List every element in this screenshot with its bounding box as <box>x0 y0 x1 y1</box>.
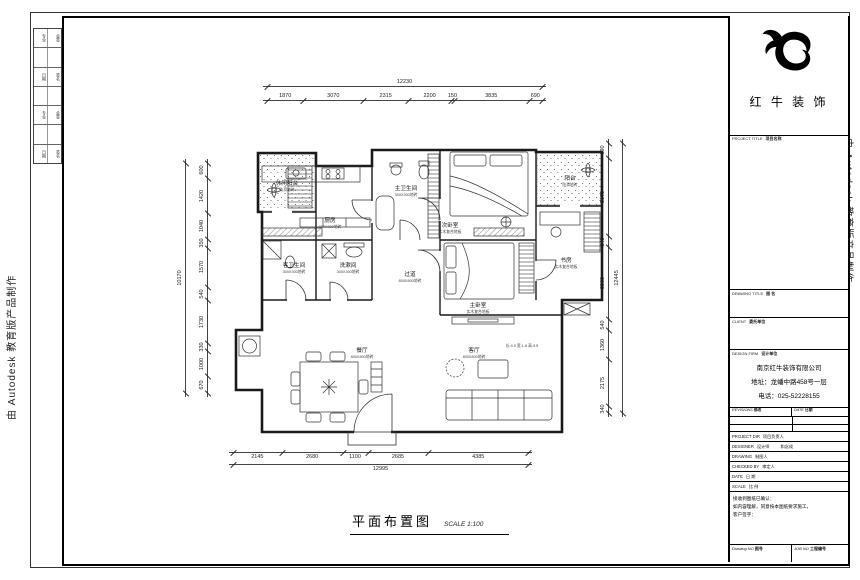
note-section: 接收到图纸已确认： 如内容理解，同意按本图纸要求施工， 客户签字： <box>730 492 848 545</box>
svg-text:防滑地砖: 防滑地砖 <box>279 187 294 192</box>
row-designer: DESIGNER设计师和念成 <box>730 442 848 452</box>
row-checked-by: CHECKED BY审定人 <box>730 462 848 472</box>
room-label-living: 客厅 <box>468 346 480 354</box>
firm-phone: 电话：025-52228155 <box>730 390 848 400</box>
client-section: CLIENT委托单位 <box>730 318 848 350</box>
revision-row <box>730 417 848 425</box>
firm-address: 地址：龙蟠中路458号一层 <box>730 376 848 386</box>
room-label-guest-bath: 客卫生间 <box>283 261 306 269</box>
row-project-dir: PROJECT DIR项目负责人 <box>730 432 848 442</box>
room-label-hallway: 过道 <box>404 270 416 278</box>
room-label-second-bedroom: 次卧室 <box>442 221 459 229</box>
company-name: 红 牛 装 饰 <box>730 93 848 110</box>
svg-text:800X800地砖: 800X800地砖 <box>319 224 342 229</box>
room-label-dining: 餐厅 <box>356 346 368 354</box>
svg-text:300X300地砖: 300X300地砖 <box>395 192 418 197</box>
title-block: 红 牛 装 饰 PROJECT TITLE项目名称 DRAWING TITLE图… <box>728 16 848 562</box>
revisions-table: REVISIONS 修改 DATE 日期 <box>730 408 848 432</box>
drawing-title-section: DRAWING TITLE图 名 <box>730 290 848 318</box>
svg-text:300X300地砖: 300X300地砖 <box>283 269 306 274</box>
bull-logo-icon <box>760 26 818 84</box>
drawing-caption-scale: SCALE 1:100 <box>444 521 483 528</box>
svg-text:防滑地砖: 防滑地砖 <box>562 182 577 187</box>
svg-text:300X300地砖: 300X300地砖 <box>337 269 360 274</box>
design-firm-section: DESIGN FIRM设计单位 南京红牛装饰有限公司 地址：龙蟠中路458号一层… <box>730 350 848 408</box>
company-logo: 红 牛 装 饰 <box>730 16 848 136</box>
drawing-no-cell: Drawing NO 图号 <box>730 545 792 562</box>
svg-text:800X800地砖: 800X800地砖 <box>399 278 422 283</box>
drawing-caption-title: 平面布置图 <box>352 514 432 529</box>
room-label-master-bath: 主卫生间 <box>395 184 418 192</box>
drawing-caption: 平面布置图SCALE 1:100 <box>350 511 509 535</box>
room-label-leisure-balcony: 休闲阳台 <box>276 179 299 187</box>
room-label-washroom: 洗漱间 <box>340 261 357 269</box>
revision-row <box>730 425 848 432</box>
firm-name: 南京红牛装饰有限公司 <box>730 362 848 372</box>
info-rows: PROJECT DIR项目负责人 DESIGNER设计师和念成 DRAWING制… <box>730 432 848 492</box>
room-label-balcony: 阳台 <box>564 174 576 182</box>
size-annotation: 长:4.5 宽:1.8 高:3.5 <box>506 343 539 348</box>
row-scale: SCALE比 例 <box>730 482 848 492</box>
drawing-sheet: 由 Autodesk 教育版产品制作 由 Autodesk 教育版产品制作 专业… <box>0 0 860 580</box>
room-label-master-bedroom: 主卧室 <box>470 301 487 309</box>
svg-text:实木复合地板: 实木复合地板 <box>439 229 462 234</box>
svg-text:800X800地砖: 800X800地砖 <box>351 354 374 359</box>
project-title-section: PROJECT TITLE项目名称 <box>730 135 848 290</box>
svg-text:实木复合地板: 实木复合地板 <box>467 309 490 314</box>
svg-text:800X800地砖: 800X800地砖 <box>463 354 486 359</box>
drawing-number-row: Drawing NO 图号 JOB NO 工程编号 <box>730 545 848 562</box>
room-label-kitchen: 厨房 <box>324 216 336 224</box>
svg-text:实木复合地板: 实木复合地板 <box>555 264 578 269</box>
row-date: DATE日 期 <box>730 472 848 482</box>
job-no-cell: JOB NO 工程编号 <box>792 545 828 562</box>
room-label-study: 书房 <box>560 256 572 264</box>
row-drawing: DRAWING制图人 <box>730 452 848 462</box>
